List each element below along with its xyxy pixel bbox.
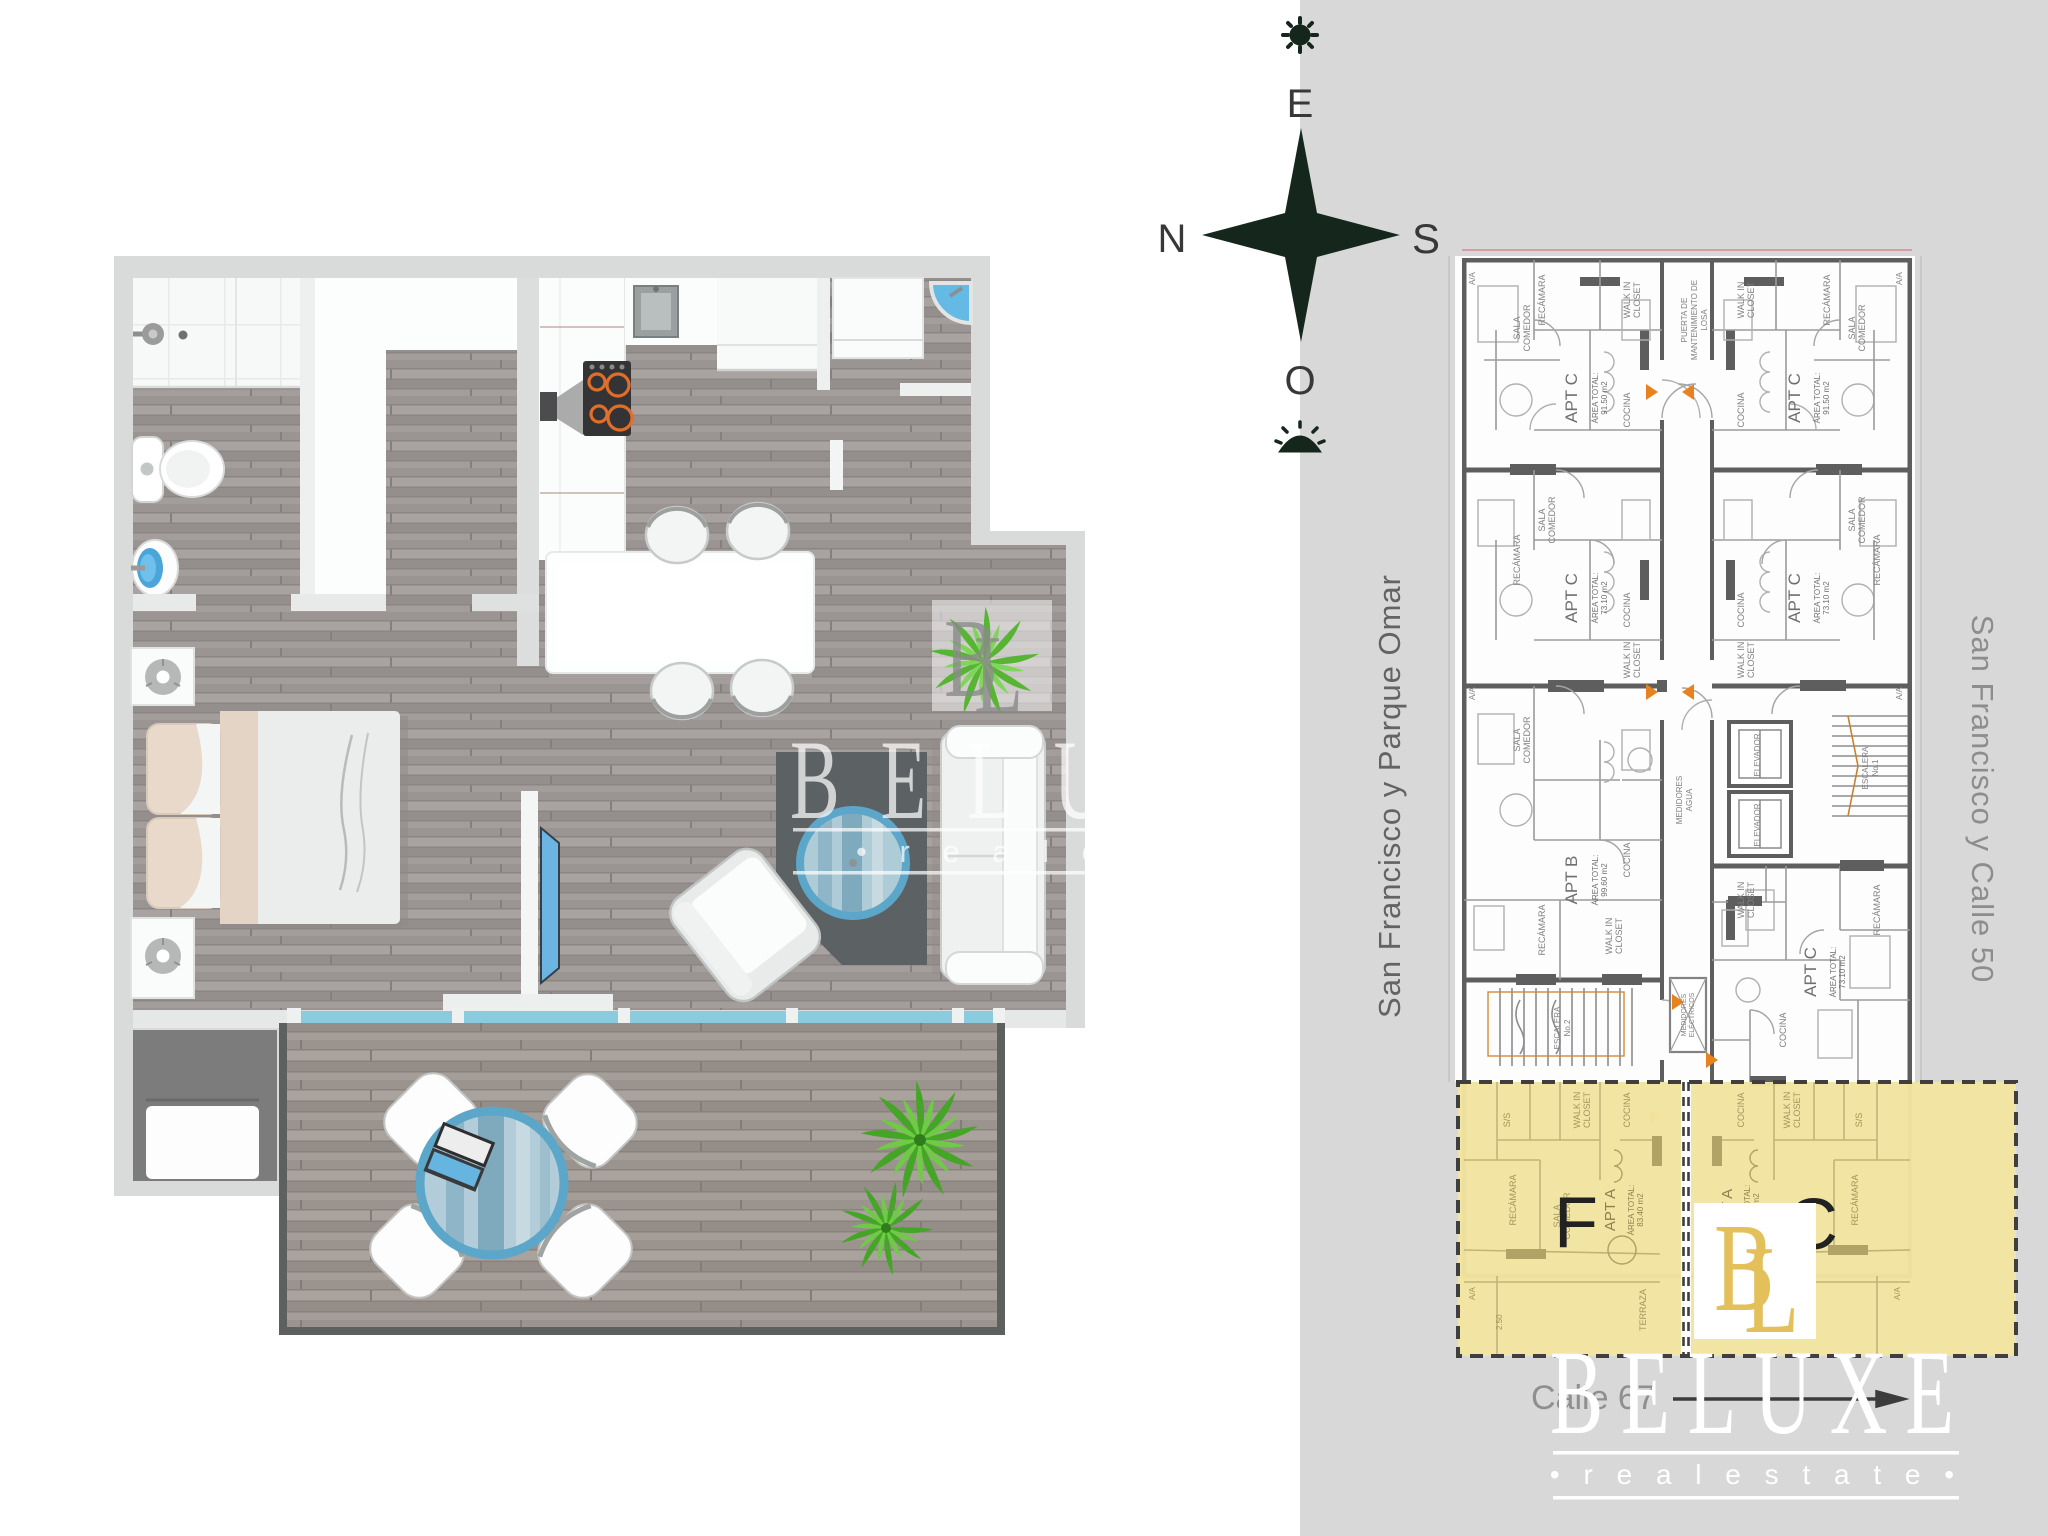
svg-text:CLOSET: CLOSET (1614, 917, 1624, 954)
svg-text:ÁREA TOTAL:: ÁREA TOTAL: (1627, 1185, 1636, 1236)
svg-text:WALK IN: WALK IN (1736, 282, 1746, 319)
svg-text:RECÁMARA: RECÁMARA (1537, 904, 1547, 955)
svg-text:S: S (1412, 215, 1440, 262)
svg-text:F: F (1554, 1183, 1598, 1263)
svg-text:73.10 m2: 73.10 m2 (1600, 581, 1609, 615)
svg-text:MEDIDORES: MEDIDORES (1681, 993, 1688, 1036)
svg-text:San Francisco y Calle 50: San Francisco y Calle 50 (1965, 615, 2000, 984)
svg-text:APT C: APT C (1801, 947, 1820, 997)
svg-text:• r e a l e s t a: • r e a l e s t a (856, 834, 1250, 869)
svg-text:WALK IN: WALK IN (1622, 642, 1632, 679)
svg-text:RECÁMARA: RECÁMARA (1508, 1174, 1518, 1225)
svg-text:S/S: S/S (1502, 1113, 1512, 1128)
svg-text:COMEDOR: COMEDOR (1522, 716, 1532, 764)
svg-text:San Francisco y Parque Omar: San Francisco y Parque Omar (1372, 574, 1407, 1018)
svg-text:COCINA: COCINA (1622, 592, 1632, 627)
svg-text:AGUA: AGUA (1685, 788, 1694, 811)
svg-text:83.40 m2: 83.40 m2 (1636, 1193, 1645, 1227)
svg-text:ÁREA TOTAL:: ÁREA TOTAL: (1591, 373, 1600, 424)
svg-text:TERRAZA: TERRAZA (1638, 1289, 1648, 1331)
svg-text:CLOSET: CLOSET (1582, 1091, 1592, 1128)
svg-text:RECÁMARA: RECÁMARA (1872, 884, 1882, 935)
svg-text:SALA: SALA (1537, 508, 1547, 531)
svg-text:APT C: APT C (1562, 573, 1581, 623)
svg-text:99.60 m2: 99.60 m2 (1600, 863, 1609, 897)
svg-text:A/A: A/A (1893, 1286, 1902, 1300)
svg-text:CLOSET: CLOSET (1792, 1091, 1802, 1128)
svg-text:RECÁMARA: RECÁMARA (1872, 534, 1882, 585)
svg-text:N: N (1158, 217, 1187, 261)
svg-text:A/A: A/A (1468, 1286, 1477, 1300)
svg-text:WALK IN: WALK IN (1736, 882, 1746, 919)
svg-text:WALK IN: WALK IN (1604, 918, 1614, 955)
svg-text:S/S: S/S (1854, 1113, 1864, 1128)
svg-text:COCINA: COCINA (1778, 1012, 1788, 1047)
svg-text:ELEVADOR: ELEVADOR (1753, 733, 1762, 776)
svg-text:SALA: SALA (1512, 316, 1522, 339)
svg-text:MEDIDORES: MEDIDORES (1675, 776, 1684, 824)
svg-text:COMEDOR: COMEDOR (1857, 304, 1867, 352)
svg-text:A/A: A/A (1468, 686, 1477, 700)
svg-text:APT B: APT B (1562, 856, 1581, 905)
svg-text:COCINA: COCINA (1736, 392, 1746, 427)
svg-text:A/A: A/A (1895, 271, 1904, 285)
svg-text:WALK IN: WALK IN (1622, 282, 1632, 319)
svg-text:ÁREA TOTAL:: ÁREA TOTAL: (1591, 855, 1600, 906)
svg-text:No.2: No.2 (1563, 1019, 1572, 1036)
svg-text:APT C: APT C (1785, 373, 1804, 423)
svg-text:RECÁMARA: RECÁMARA (1822, 274, 1832, 325)
svg-text:No.1: No.1 (1871, 759, 1880, 776)
svg-text:ÁREA TOTAL:: ÁREA TOTAL: (1829, 947, 1838, 998)
svg-text:RECÁMARA: RECÁMARA (1537, 274, 1547, 325)
svg-text:WALK IN: WALK IN (1572, 1092, 1582, 1129)
svg-text:A/A: A/A (1468, 271, 1477, 285)
svg-text:ESCALERA: ESCALERA (1553, 1006, 1562, 1049)
svg-text:COMEDOR: COMEDOR (1522, 304, 1532, 352)
svg-text:COCINA: COCINA (1736, 1092, 1746, 1127)
svg-text:BELUXE: BELUXE (1550, 1327, 1972, 1460)
svg-text:COCINA: COCINA (1622, 1092, 1632, 1127)
svg-text:91.50 m2: 91.50 m2 (1600, 381, 1609, 415)
svg-text:COCINA: COCINA (1622, 392, 1632, 427)
svg-text:ELÉCTRICOS: ELÉCTRICOS (1687, 992, 1696, 1037)
svg-text:SALA: SALA (1847, 508, 1857, 531)
svg-text:APT C: APT C (1785, 573, 1804, 623)
svg-text:E: E (1287, 82, 1314, 126)
svg-text:ÁREA TOTAL:: ÁREA TOTAL: (1813, 373, 1822, 424)
svg-text:RECÁMARA: RECÁMARA (1850, 1174, 1860, 1225)
svg-text:• r e a l e s t a t e •: • r e a l e s t a t e • (1550, 1459, 1962, 1490)
svg-text:SALA: SALA (1847, 316, 1857, 339)
svg-text:91.50 m2: 91.50 m2 (1822, 381, 1831, 415)
svg-text:SALA: SALA (1512, 728, 1522, 751)
svg-text:CLOSET: CLOSET (1746, 281, 1756, 318)
svg-text:ÁREA TOTAL:: ÁREA TOTAL: (1813, 573, 1822, 624)
svg-text:ÁREA TOTAL:: ÁREA TOTAL: (1591, 573, 1600, 624)
svg-text:73.10 m2: 73.10 m2 (1838, 955, 1847, 989)
svg-text:CLOSET: CLOSET (1746, 881, 1756, 918)
svg-text:PUERTA DE: PUERTA DE (1680, 298, 1689, 343)
svg-text:2.50: 2.50 (1495, 1314, 1504, 1330)
svg-text:WALK IN: WALK IN (1782, 1092, 1792, 1129)
svg-text:APT A: APT A (1602, 1189, 1619, 1231)
svg-text:73.10 m2: 73.10 m2 (1822, 581, 1831, 615)
svg-text:CLOSET: CLOSET (1746, 641, 1756, 678)
svg-text:APT C: APT C (1562, 373, 1581, 423)
svg-text:MANTENIMIENTO DE: MANTENIMIENTO DE (1690, 280, 1699, 360)
svg-text:COMEDOR: COMEDOR (1547, 496, 1557, 544)
svg-text:COMEDOR: COMEDOR (1857, 496, 1867, 544)
svg-text:ELEVADOR: ELEVADOR (1753, 803, 1762, 846)
svg-text:A/A: A/A (1895, 686, 1904, 700)
svg-text:COCINA: COCINA (1736, 592, 1746, 627)
svg-text:ESCALERA: ESCALERA (1861, 746, 1870, 789)
svg-text:BELUXE: BELUXE (790, 718, 1330, 843)
svg-text:LOSA: LOSA (1700, 309, 1709, 331)
svg-text:CLOSET: CLOSET (1632, 641, 1642, 678)
svg-text:RECÁMARA: RECÁMARA (1512, 534, 1522, 585)
svg-text:CLOSET: CLOSET (1632, 281, 1642, 318)
svg-text:WALK IN: WALK IN (1736, 642, 1746, 679)
svg-text:O: O (1284, 359, 1315, 403)
svg-text:COCINA: COCINA (1622, 842, 1632, 877)
